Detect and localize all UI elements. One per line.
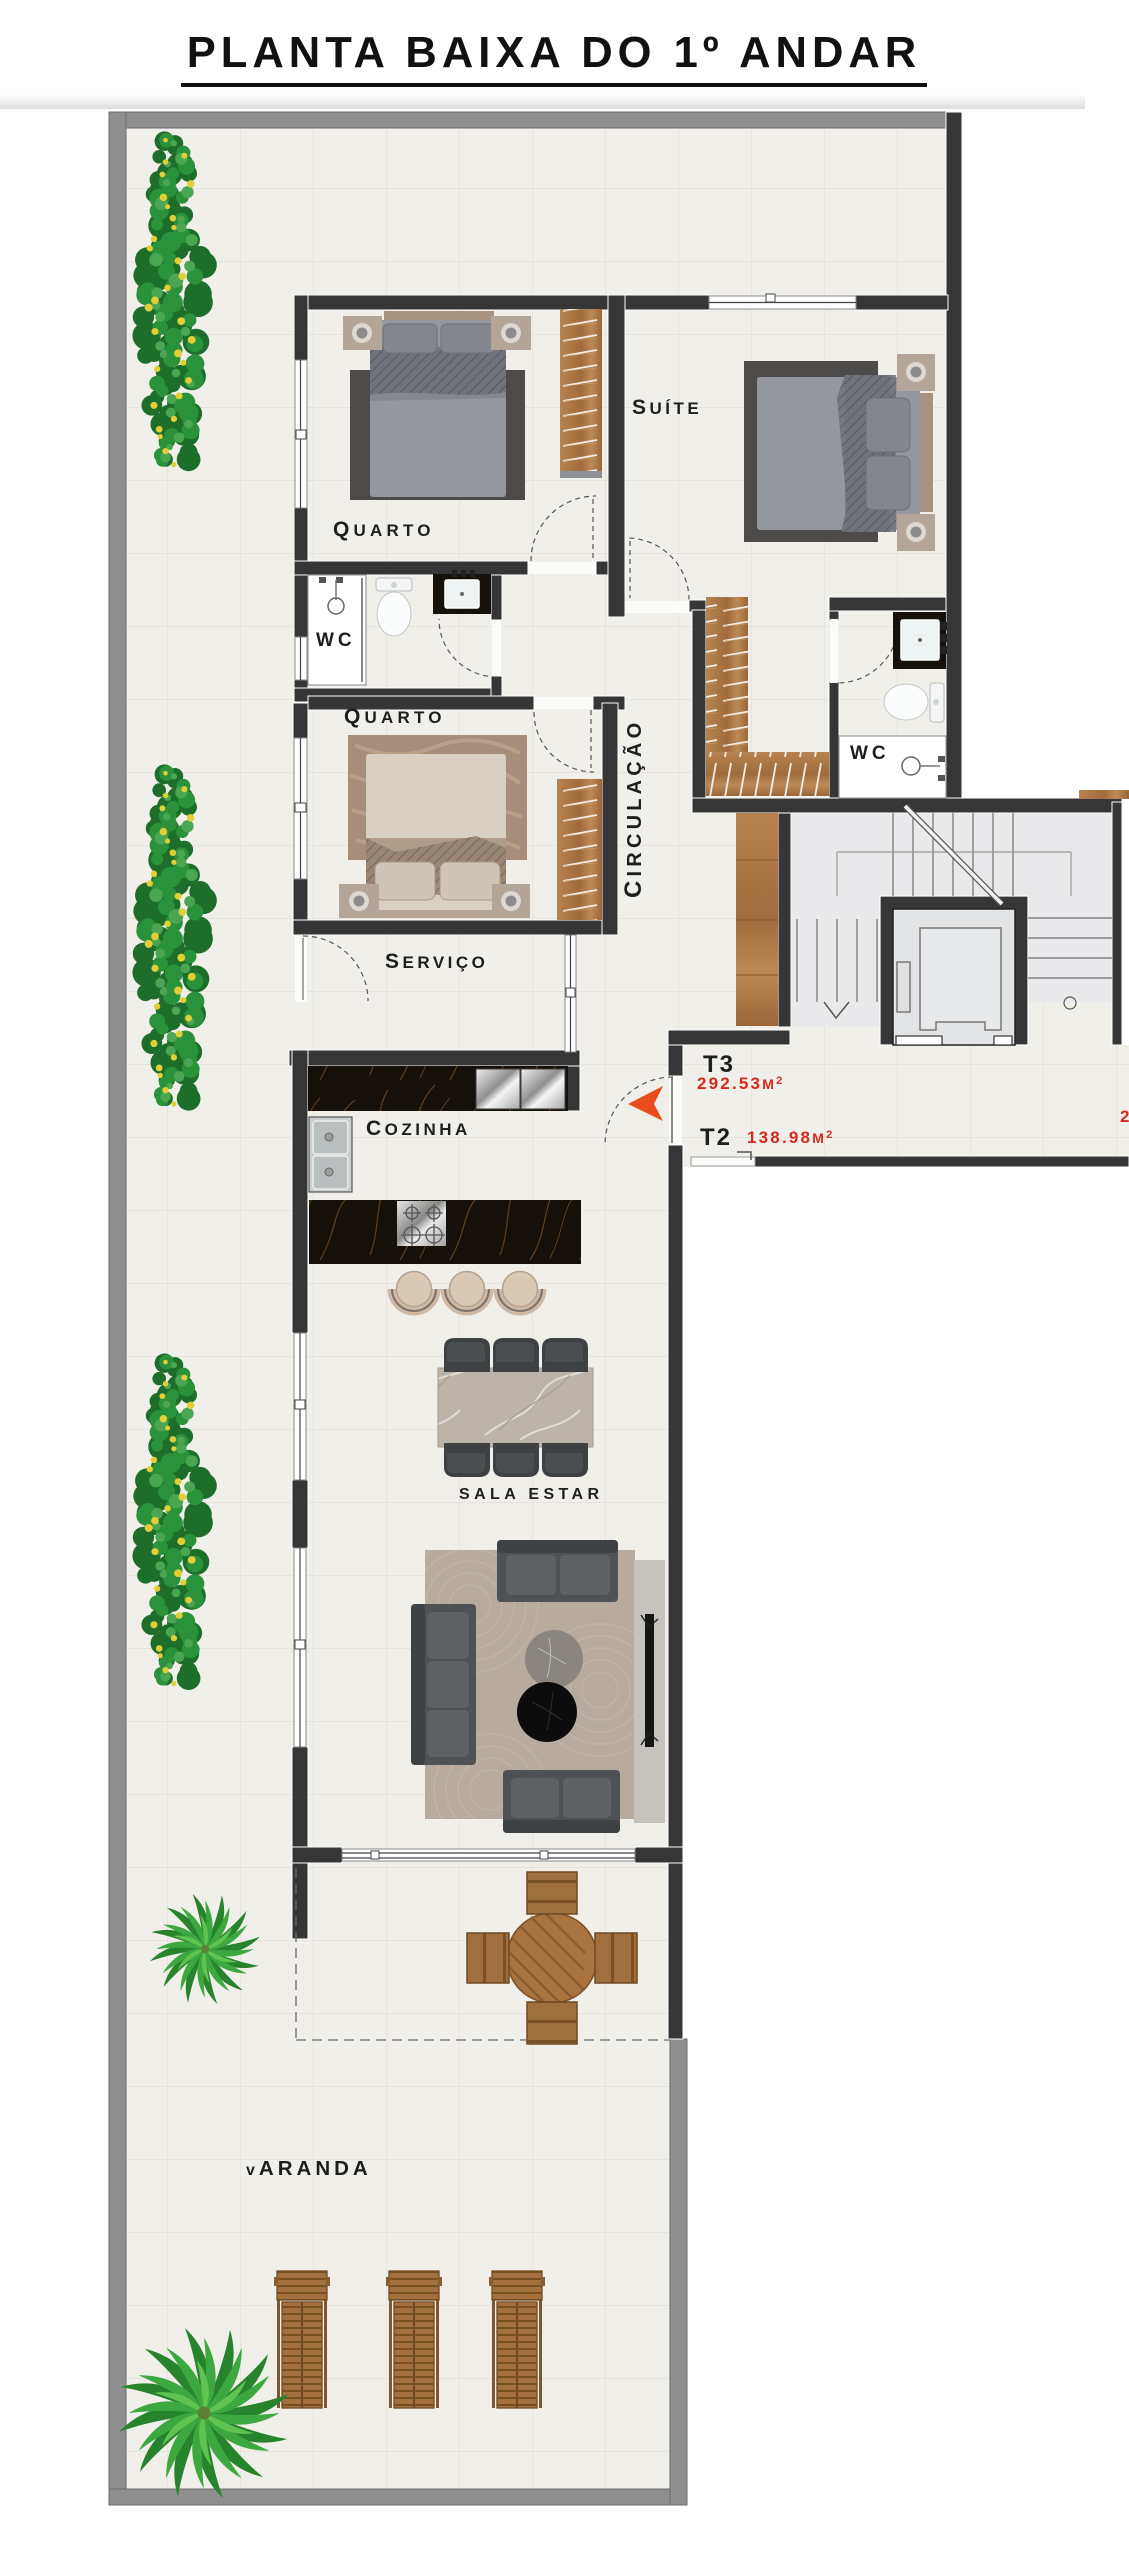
svg-text:T2: T2 <box>700 1124 732 1151</box>
svg-text:SUÍTE: SUÍTE <box>632 396 702 419</box>
svg-text:QUARTO: QUARTO <box>344 705 446 728</box>
svg-text:COZINHA: COZINHA <box>366 1117 471 1140</box>
svg-text:SALA ESTAR: SALA ESTAR <box>459 1486 603 1503</box>
svg-text:138.98M2: 138.98M2 <box>747 1128 834 1147</box>
svg-text:292.53M2: 292.53M2 <box>697 1074 784 1093</box>
svg-text:vARANDA: vARANDA <box>246 2157 372 2180</box>
svg-text:CIRCULAÇÃO: CIRCULAÇÃO <box>620 719 647 898</box>
svg-text:SERVIÇO: SERVIÇO <box>385 950 488 973</box>
svg-text:QUARTO: QUARTO <box>333 518 435 541</box>
svg-text:WC: WC <box>316 630 356 651</box>
svg-text:29: 29 <box>1120 1107 1129 1126</box>
svg-text:WC: WC <box>850 743 890 764</box>
